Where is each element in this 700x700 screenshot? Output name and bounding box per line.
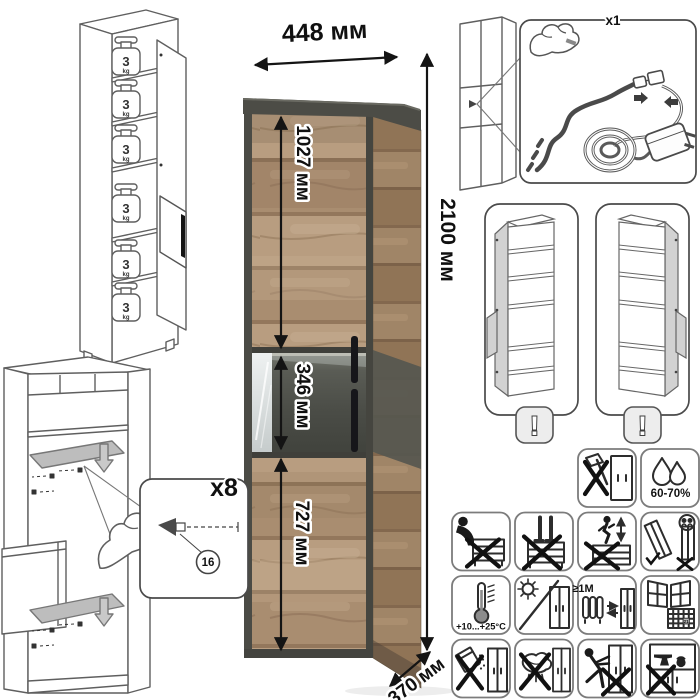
diagram-scene: 448 мм 2100 мм 1027 мм 346 мм 727 мм 370… — [0, 0, 700, 700]
glass-door-handle — [181, 214, 185, 258]
pin-count-label: x8 — [210, 474, 238, 502]
warning-exclamation: ! — [530, 411, 539, 441]
icon-no-sharp-tools — [578, 449, 636, 507]
icon-no-sitting — [452, 513, 510, 571]
icon-ventilation: 21 — [641, 576, 699, 634]
width-dimension-label: 448 мм — [281, 16, 368, 48]
weight-value: 3 — [122, 300, 129, 315]
upper-section-dimension-label: 1027 мм — [292, 125, 313, 201]
product-render — [243, 98, 455, 696]
temperature-value: +10...+25°C — [456, 622, 506, 632]
distance-value: ≥1М — [572, 583, 593, 595]
icon-no-direct-sunlight — [515, 576, 573, 634]
weight-unit: kg — [122, 157, 129, 163]
weight-icon: 3 kg — [112, 37, 140, 75]
icon-transport-orientation — [641, 513, 699, 571]
pin-part-number: 16 — [202, 557, 215, 569]
weight-icon: 3 kg — [112, 184, 140, 222]
icon-no-jumping — [578, 513, 636, 571]
door-option-left-panel: ! — [485, 204, 578, 443]
led-kit-diagram: x1 — [460, 13, 699, 190]
weight-value: 3 — [122, 142, 129, 157]
door-handle-upper — [351, 336, 358, 383]
weight-value: 3 — [122, 257, 129, 272]
icon-no-standing — [515, 513, 573, 571]
weight-icon: 3 kg — [112, 240, 140, 278]
icon-no-heavy-load — [641, 640, 699, 698]
calendar-day: 21 — [684, 619, 690, 624]
weight-icon: 3 kg — [112, 125, 140, 163]
weight-unit: kg — [122, 112, 129, 118]
lower-section-dimension-label: 727 мм — [291, 500, 312, 565]
weight-value: 3 — [122, 201, 129, 216]
icon-no-dragging — [578, 640, 636, 698]
door-handle-lower — [351, 389, 358, 452]
care-icon-grid: 60-70% — [452, 449, 699, 698]
weight-value: 3 — [122, 97, 129, 112]
height-dimension-label: 2100 мм — [436, 198, 459, 282]
weight-unit: kg — [122, 272, 129, 278]
icon-heater-distance: ≥1М — [572, 576, 636, 634]
furniture-spec-sheet: 448 мм 2100 мм 1027 мм 346 мм 727 мм 370… — [0, 0, 700, 700]
warning-exclamation: ! — [638, 411, 647, 441]
weight-icon: 3 kg — [112, 80, 140, 118]
display-section-dimension-label: 346 мм — [292, 363, 313, 428]
humidity-value: 60-70% — [651, 488, 691, 500]
weight-value: 3 — [122, 54, 129, 69]
icon-temperature-range: +10...+25°C — [452, 576, 510, 634]
led-kit-count-label: x1 — [605, 13, 621, 28]
icon-humidity: 60-70% — [641, 449, 699, 507]
weight-icon: 3 kg — [112, 283, 140, 321]
shelf-pin-panel: x8 16 — [140, 474, 248, 598]
weight-unit: kg — [122, 69, 129, 75]
weight-unit: kg — [122, 216, 129, 222]
icon-no-abrasives — [452, 640, 510, 698]
door-option-right-panel: ! — [596, 204, 689, 443]
weight-unit: kg — [122, 315, 129, 321]
icon-no-wet-cleaning — [515, 640, 573, 698]
